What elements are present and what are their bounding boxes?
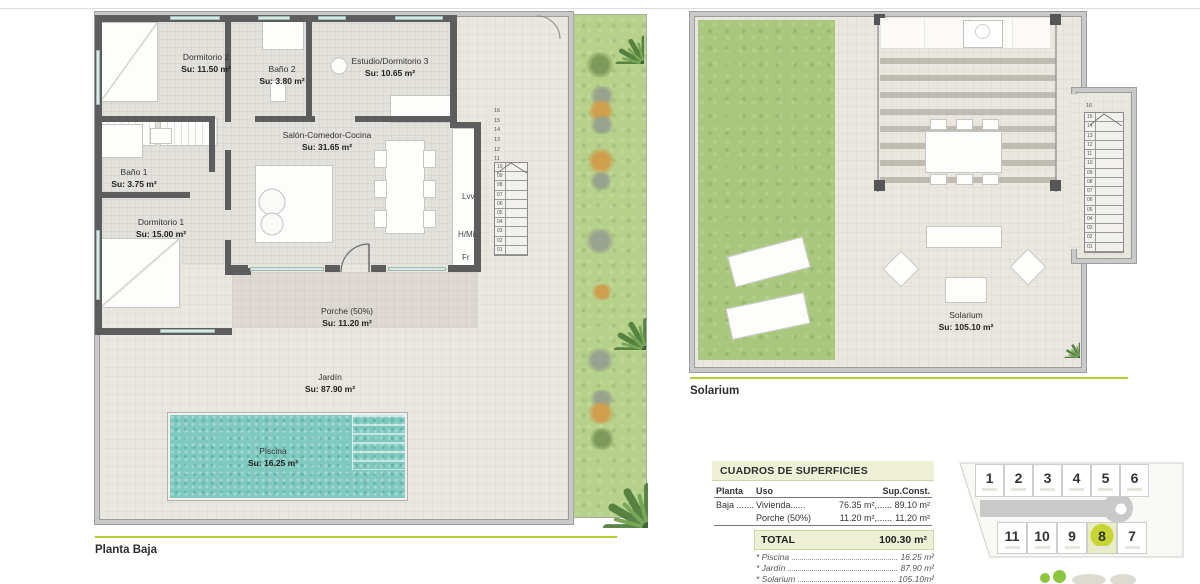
chair [423, 150, 436, 168]
floorplan-sheet: Dormitorio 2 Su: 11.50 m² Baño 2 Su: 3.8… [0, 0, 1200, 584]
pergola-slat [880, 58, 1056, 64]
stair-step: 05 [1085, 206, 1123, 215]
room-name: Dormitorio 1 [136, 217, 186, 229]
pergola-column [874, 180, 885, 191]
wall-segment [450, 15, 457, 128]
extra-label: * Jardín [756, 563, 785, 574]
room-name: Jardín [305, 372, 355, 384]
pergola-slat [880, 109, 1056, 115]
bush [584, 228, 616, 254]
bush [586, 148, 616, 174]
plot-number: 6 [1120, 464, 1149, 497]
cell-uso: Porche (50%) [756, 513, 830, 523]
pergola-column [1050, 180, 1061, 191]
cell-const: 11.20 m² [892, 513, 930, 523]
plot-row-top: 123456 [975, 464, 1149, 497]
stair-number: 13 [494, 136, 500, 146]
wall-segment [225, 150, 231, 210]
extra-label: * Piscina [756, 552, 789, 563]
stair-step: 08 [495, 181, 527, 190]
room-name: Estudio/Dormitorio 3 [351, 56, 428, 68]
stair-step: 04 [495, 218, 527, 227]
room-label-estudio: Estudio/Dormitorio 3 Su: 10.65 m² [351, 56, 428, 80]
toilet-bano1 [150, 128, 172, 144]
bed-dormitorio2 [100, 22, 158, 102]
table-row: Baja ....... Vivienda...... 76.35 m²,...… [714, 498, 932, 511]
cell-uso: Vivienda...... [756, 500, 830, 510]
section-underline [95, 536, 617, 538]
chair [374, 210, 387, 228]
col-header-planta: Planta [716, 486, 756, 496]
bush [588, 172, 614, 190]
dotted-leader [798, 581, 895, 582]
room-area: Su: 15.00 m² [136, 229, 186, 241]
plot-number: 2 [1004, 464, 1033, 497]
stair-step: 01 [1085, 243, 1123, 252]
coffee-table [945, 277, 987, 303]
stair-step: 02 [1085, 233, 1123, 242]
stair-step: 05 [495, 209, 527, 218]
col-header-supconst: Sup.Const. [830, 486, 930, 496]
stair-step: 03 [1085, 224, 1123, 233]
wall-segment [325, 265, 340, 272]
shower-bano1 [99, 124, 143, 158]
stair-step: 09 [1085, 169, 1123, 178]
room-area: Su: 3.75 m² [111, 179, 156, 191]
window [318, 16, 346, 20]
chair [374, 150, 387, 168]
room-label-porche: Porche (50%) Su: 11.20 m² [321, 306, 373, 330]
dotted-leader [788, 570, 897, 571]
wall-segment [448, 265, 481, 272]
window [395, 16, 443, 20]
table-extra-row: * Solarium 105.10m² [756, 574, 934, 584]
table-title: CUADROS DE SUPERFICIES [712, 461, 934, 481]
appliance-label-washer: H/Mi [458, 230, 474, 239]
chair [956, 174, 973, 185]
bush [585, 348, 615, 372]
stair-step: 07 [495, 191, 527, 200]
room-label-piscina: Piscina Su: 16.25 m² [248, 446, 298, 470]
chair [930, 174, 947, 185]
extra-value: 87.90 m² [900, 563, 934, 574]
section-label-solarium: Solarium [690, 385, 739, 397]
wall-segment [355, 116, 457, 122]
plot-number: 10 [1027, 522, 1057, 554]
room-area: Su: 11.50 m² [181, 64, 231, 76]
table-extra-row: * Jardín 87.90 m² [756, 563, 934, 574]
palm-tree-icon [550, 430, 648, 528]
outdoor-sofa [926, 226, 1002, 248]
outdoor-dining-table [925, 131, 1002, 173]
chair [374, 180, 387, 198]
bed-dormitorio1 [100, 238, 180, 308]
extra-value: 16.25 m² [900, 552, 934, 563]
room-label-jardin: Jardín Su: 87.90 m² [305, 372, 355, 396]
pergola-slat [880, 75, 1056, 81]
window [250, 267, 324, 271]
stair-step: 15 [1085, 113, 1123, 122]
room-area: Su: 31.65 m² [283, 142, 372, 154]
room-name: Porche (50%) [321, 306, 373, 318]
window [96, 50, 100, 105]
road [980, 500, 1118, 517]
notch-join [1070, 94, 1084, 249]
window [96, 230, 100, 300]
stair-step: 11 [1085, 150, 1123, 159]
col-header-uso: Uso [756, 486, 830, 496]
shower-bano2 [262, 20, 304, 50]
plant-icon [1046, 324, 1080, 358]
dining-table [385, 140, 425, 234]
palm-tree-icon [576, 280, 646, 350]
table-total-row: TOTAL 100.30 m² [754, 530, 934, 550]
stair-step: 03 [495, 227, 527, 236]
stair-step: 06 [1085, 196, 1123, 205]
wall-segment [209, 122, 215, 172]
table-rule [714, 525, 932, 526]
plot-number: 5 [1091, 464, 1120, 497]
window [160, 329, 215, 333]
room-label-dormitorio1: Dormitorio 1 Su: 15.00 m² [136, 217, 186, 241]
pergola-edge [877, 14, 879, 192]
total-label: TOTAL [761, 534, 795, 546]
plot-row-bottom: 1110987 [997, 522, 1147, 554]
appliance-label-dishwasher: Lvv [462, 192, 474, 201]
plot-number: 7 [1117, 522, 1147, 554]
grill-burner [975, 24, 990, 39]
sofa-set [255, 165, 333, 243]
stair-step: 10 [1085, 159, 1123, 168]
plot-number: 9 [1057, 522, 1087, 554]
cell-su: 11.20 m²,...... [830, 513, 892, 523]
palm-tree-icon [582, 2, 644, 64]
stair-number: 14 [494, 126, 500, 136]
cell-su: 76.35 m²,...... [830, 500, 892, 510]
plot-number: 8 [1087, 522, 1117, 554]
section-label-planta-baja: Planta Baja [95, 544, 157, 556]
stair-step: 12 [1085, 141, 1123, 150]
wall-segment [255, 116, 315, 122]
room-label-dormitorio2: Dormitorio 2 Su: 11.50 m² [181, 52, 231, 76]
staircase-left: 10090807060504030201 [494, 162, 528, 256]
plot-number: 1 [975, 464, 1004, 497]
stair-numbers-upper: 161514131211 [494, 107, 500, 165]
plot-number: 11 [997, 522, 1027, 554]
plot-number: 3 [1033, 464, 1062, 497]
stair-step: 07 [1085, 187, 1123, 196]
room-name: Solarium [939, 310, 994, 322]
chair [982, 119, 999, 130]
dotted-leader [792, 559, 897, 560]
plot-location-map: 123456 1110987 [950, 450, 1195, 580]
chair [930, 119, 947, 130]
room-name: Piscina [248, 446, 298, 458]
wall-segment [95, 192, 190, 198]
stair-top-number: 16 [1086, 103, 1092, 109]
stair-step: 08 [1085, 178, 1123, 187]
room-label-bano1: Baño 1 Su: 3.75 m² [111, 167, 156, 191]
logo-fragment [1053, 570, 1066, 583]
bush [586, 402, 616, 424]
cell-const: 89.10 m² [892, 500, 930, 510]
room-area: Su: 16.25 m² [248, 458, 298, 470]
window [388, 267, 446, 271]
room-area: Su: 3.80 m² [259, 76, 304, 88]
stair-step: 13 [1085, 132, 1123, 141]
stair-step: 14 [1085, 122, 1123, 131]
wall-segment [474, 122, 481, 272]
stair-number: 16 [494, 107, 500, 117]
wall-segment [371, 265, 386, 272]
wall-segment [231, 265, 248, 272]
chair [423, 180, 436, 198]
table-extra-row: * Piscina 16.25 m² [756, 552, 934, 563]
room-name: Dormitorio 2 [181, 52, 231, 64]
stair-step: 01 [495, 246, 527, 255]
room-name: Baño 2 [259, 64, 304, 76]
total-value: 100.30 m² [879, 534, 927, 546]
room-area: Su: 11.20 m² [321, 318, 373, 330]
chair [982, 174, 999, 185]
room-label-solarium: Solarium Su: 105.10 m² [939, 310, 994, 334]
pergola-column [1050, 14, 1061, 25]
stair-step: 02 [495, 237, 527, 246]
chair [423, 210, 436, 228]
room-area: Su: 105.10 m² [939, 322, 994, 334]
stair-step: 09 [495, 172, 527, 181]
cell-planta: Baja ....... [716, 500, 756, 510]
window [170, 16, 220, 20]
room-label-bano2: Baño 2 Su: 3.80 m² [259, 64, 304, 88]
plot-number: 4 [1062, 464, 1091, 497]
wall-segment [95, 116, 215, 122]
room-name: Salón-Comedor-Cocina [283, 130, 372, 142]
room-area: Su: 10.65 m² [351, 68, 428, 80]
room-label-salon: Salón-Comedor-Cocina Su: 31.65 m² [283, 130, 372, 154]
extra-label: * Solarium [756, 574, 795, 584]
pool-steps [352, 415, 405, 470]
stair-step: 06 [495, 200, 527, 209]
room-area: Su: 87.90 m² [305, 384, 355, 396]
stair-number: 12 [494, 146, 500, 156]
surfaces-table: CUADROS DE SUPERFICIES Planta Uso Sup.Co… [712, 461, 934, 584]
appliance-label-fridge: Fr [462, 253, 470, 262]
stair-step: 10 [495, 163, 527, 172]
bush [588, 116, 616, 134]
staircase-right: 151413121110090807060504030201 [1084, 112, 1124, 253]
extra-value: 105.10m² [898, 574, 934, 584]
room-name: Baño 1 [111, 167, 156, 179]
table-row: Porche (50%) 11.20 m²,...... 11.20 m² [714, 511, 932, 524]
chair [956, 119, 973, 130]
section-underline [690, 377, 1128, 379]
window [258, 16, 290, 20]
stair-number: 15 [494, 117, 500, 127]
stair-step: 04 [1085, 215, 1123, 224]
wall-segment [306, 15, 312, 122]
pergola-slat [880, 92, 1056, 98]
table-header-row: Planta Uso Sup.Const. [714, 484, 932, 498]
logo-fragment [1040, 573, 1050, 583]
